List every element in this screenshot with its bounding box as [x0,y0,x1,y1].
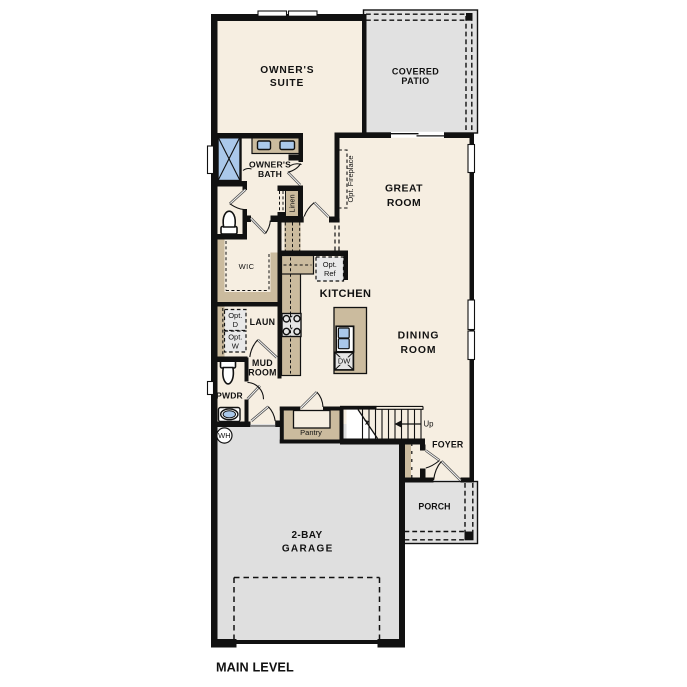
svg-text:Linen: Linen [288,194,297,212]
svg-text:D: D [233,320,239,329]
svg-text:WH: WH [218,431,231,440]
svg-text:KITCHEN: KITCHEN [320,288,372,300]
svg-text:ROOM: ROOM [401,345,437,356]
svg-text:BATH: BATH [258,169,282,179]
svg-text:DINING: DINING [398,330,440,341]
svg-text:Pantry: Pantry [300,428,322,437]
svg-text:FOYER: FOYER [432,439,464,449]
svg-text:ROOM: ROOM [248,367,277,377]
svg-text:Opt. Fireplace: Opt. Fireplace [346,155,355,202]
svg-text:Opt.: Opt. [228,332,242,341]
svg-text:2-BAY: 2-BAY [291,530,322,541]
svg-text:PWDR: PWDR [216,391,243,401]
svg-text:Opt.: Opt. [323,260,337,269]
svg-text:LAUN: LAUN [250,317,276,327]
svg-text:PORCH: PORCH [418,502,450,512]
svg-text:DW: DW [338,356,351,365]
svg-text:GREAT: GREAT [385,184,423,195]
svg-text:W: W [232,342,240,351]
svg-text:Opt.: Opt. [228,311,242,320]
svg-text:Up: Up [424,420,435,429]
svg-text:PATIO: PATIO [401,76,429,86]
svg-text:OWNER'S: OWNER'S [260,65,314,76]
svg-text:ROOM: ROOM [387,198,421,209]
svg-text:MAIN LEVEL: MAIN LEVEL [216,660,294,674]
svg-text:WIC: WIC [239,262,255,271]
svg-text:Ref: Ref [324,269,337,278]
svg-text:SUITE: SUITE [270,78,304,89]
svg-text:GARAGE: GARAGE [282,543,334,554]
